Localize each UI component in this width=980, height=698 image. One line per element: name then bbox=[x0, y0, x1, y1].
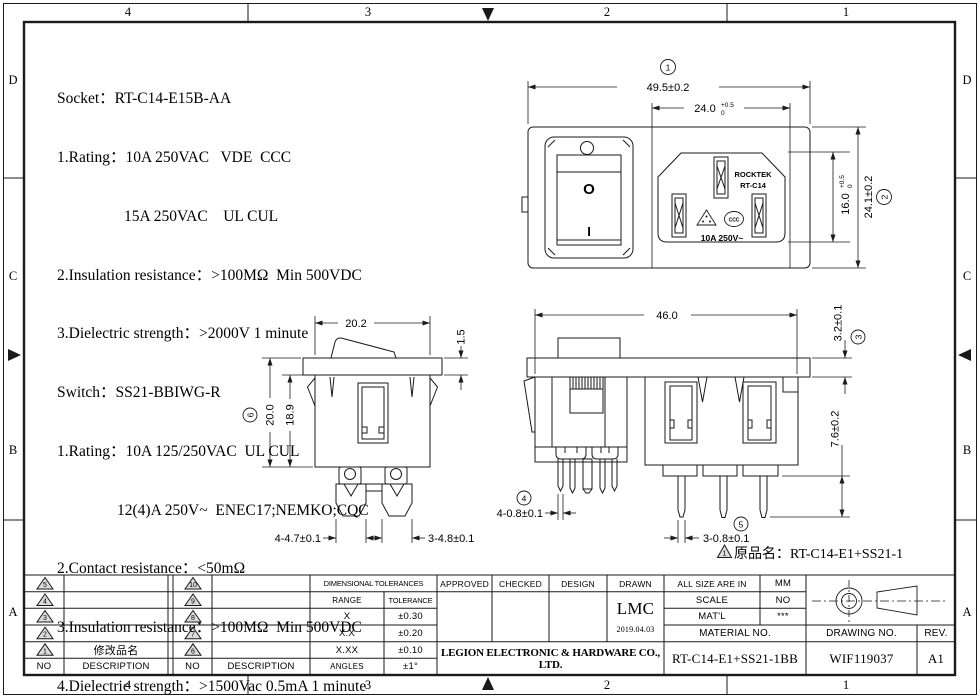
dim-opening-tol-dn: 0 bbox=[721, 110, 725, 117]
zone-col-2: 2 bbox=[596, 5, 618, 20]
approved-header: APPROVED bbox=[437, 575, 492, 592]
dim-overall-height: 24.1±0.2 bbox=[863, 176, 875, 219]
drawing-sheet: 5 4 3 2 1 10 9 8 7 6 O I bbox=[0, 0, 980, 698]
original-name-note: 原品名：RT-C14-E1+SS21-1 bbox=[734, 546, 903, 562]
design-header: DESIGN bbox=[549, 575, 607, 592]
tol-value-xx: ±0.20 bbox=[384, 625, 437, 642]
spec-line: Switch：SS21-BBIWG-R bbox=[57, 383, 369, 403]
tol-range-xx: X.X bbox=[310, 625, 384, 642]
drawn-header: DRAWN bbox=[607, 575, 664, 592]
center-mark-bottom-icon bbox=[482, 677, 494, 690]
ref-balloon-3: 3 bbox=[854, 334, 864, 339]
dim-terminal-b: 3-4.8±0.1 bbox=[428, 533, 474, 545]
rev-no: 2 bbox=[43, 632, 47, 639]
spec-line: 1.Rating：10A 250VAC VDE CCC bbox=[57, 148, 369, 168]
ccc-mark-icon: CCC bbox=[725, 212, 744, 227]
dim-pin-length: 7.6±0.2 bbox=[830, 411, 842, 448]
spec-line: 4.Dielectric strength：>1500Vac 0.5mA 1 m… bbox=[57, 677, 369, 697]
tol-value-angles: ±1° bbox=[384, 658, 437, 675]
scale-value: NO bbox=[760, 592, 806, 608]
checked-header: CHECKED bbox=[492, 575, 549, 592]
revision-1-description: 修改品名 bbox=[64, 642, 168, 658]
rev-desc-header-right: DESCRIPTION bbox=[212, 658, 310, 675]
zone-col-1b: 1 bbox=[835, 678, 857, 693]
dim-socket-pin-thickness: 3-0.8±0.1 bbox=[703, 533, 749, 545]
rev-no: 5 bbox=[43, 582, 47, 589]
front-view: O I ROCKTEK RT-C14 CCC 10A 250V~ bbox=[522, 60, 892, 269]
rev-no-header-left: NO bbox=[24, 658, 64, 675]
zone-col-3: 3 bbox=[357, 5, 379, 20]
zone-row-b2: B bbox=[956, 443, 978, 458]
rating-label: 10A 250V~ bbox=[701, 233, 743, 243]
unit-value: MM bbox=[760, 575, 806, 592]
spec-line: 12(4)A 250V~ ENEC17;NEMKO;CQC bbox=[117, 501, 369, 521]
dim-switch-pin-thickness: 4-0.8±0.1 bbox=[497, 508, 543, 520]
brand-label: ROCKTEK bbox=[734, 170, 772, 179]
third-angle-projection-icon bbox=[812, 580, 948, 622]
rev-no: 4 bbox=[43, 599, 47, 606]
zone-row-a2: A bbox=[956, 605, 978, 620]
dim-inlet-height: 16.0 bbox=[840, 193, 852, 214]
spec-line: Socket：RT-C14-E15B-AA bbox=[57, 89, 369, 109]
ref-balloon-1: 1 bbox=[666, 63, 671, 73]
rev-no-header-right: NO bbox=[173, 658, 212, 675]
dim-overall-width: 49.5±0.2 bbox=[647, 82, 690, 94]
dim-flange-thickness: 1.5 bbox=[456, 329, 468, 344]
tol-range-angles: ANGLES bbox=[310, 658, 384, 675]
tol-value-x: ±0.30 bbox=[384, 608, 437, 625]
switch-on-symbol: I bbox=[587, 224, 591, 239]
scale-label: SCALE bbox=[664, 592, 760, 608]
drawn-by: LMC bbox=[607, 596, 664, 622]
spec-line: 15A 250VAC UL CUL bbox=[124, 207, 369, 227]
rev-no: 3 bbox=[43, 615, 47, 622]
rev-label: REV. bbox=[917, 625, 955, 642]
tol-range-x: X bbox=[310, 608, 384, 625]
zone-col-4: 4 bbox=[117, 5, 139, 20]
range-header: RANGE bbox=[310, 592, 384, 608]
socket-pins bbox=[678, 476, 767, 518]
spec-line: 2.Insulation resistance：>100MΩ Min 500VD… bbox=[57, 266, 369, 286]
tol-value-xxx: ±0.10 bbox=[384, 642, 437, 658]
dim-inlet-tol-dn: 0 bbox=[847, 184, 854, 188]
switch-off-symbol: O bbox=[583, 181, 595, 198]
dim-opening-tol-up: +0.5 bbox=[721, 102, 734, 109]
zone-row-c: C bbox=[2, 269, 24, 284]
tolerance-title: DIMENSIONAL TOLERANCES bbox=[310, 575, 437, 592]
tol-range-xxx: X.XX bbox=[310, 642, 384, 658]
vde-triangle-icon bbox=[697, 210, 716, 225]
ref-balloon-5: 5 bbox=[739, 520, 744, 530]
zone-row-a: A bbox=[2, 605, 24, 620]
drawn-date: 2019.04.03 bbox=[607, 622, 664, 636]
rev-desc-header-left: DESCRIPTION bbox=[64, 658, 168, 675]
dim-assembly-flange: 3.2±0.1 bbox=[833, 305, 845, 342]
zone-row-d2: D bbox=[956, 73, 978, 88]
zone-col-1: 1 bbox=[835, 5, 857, 20]
center-mark-right-icon bbox=[958, 349, 971, 361]
company-name: LEGION ELECTRONIC & HARDWARE CO., LTD. bbox=[437, 642, 664, 675]
center-mark-top-icon bbox=[482, 8, 494, 21]
matl-label: MAT'L bbox=[664, 608, 760, 625]
inlet-prong bbox=[698, 377, 707, 402]
assembly-side-view: 46.0 3.2±0.1 3 7.6±0.2 4-0.8±0.1 4 3-0.8… bbox=[497, 305, 904, 562]
material-no-label: MATERIAL NO. bbox=[664, 625, 806, 642]
material-no-value: RT-C14-E1+SS21-1BB bbox=[664, 642, 806, 675]
switch-pins bbox=[558, 459, 617, 493]
drawing-no-value: WIF119037 bbox=[806, 642, 917, 675]
rev-value: A1 bbox=[917, 642, 955, 675]
spec-line: 3.Dielectric strength：>2000V 1 minute bbox=[57, 324, 369, 344]
zone-row-c2: C bbox=[956, 269, 978, 284]
drawing-no-label: DRAWING NO. bbox=[806, 625, 917, 642]
model-label: RT-C14 bbox=[740, 181, 767, 190]
spec-line: 1.Rating：10A 125/250VAC UL CUL bbox=[57, 442, 369, 462]
zone-col-2b: 2 bbox=[596, 678, 618, 693]
center-mark-left-icon bbox=[8, 349, 21, 361]
svg-text:CCC: CCC bbox=[729, 218, 740, 224]
dim-assembly-width: 46.0 bbox=[656, 310, 677, 322]
ref-balloon-2: 2 bbox=[880, 194, 890, 199]
dim-inlet-tol-up: +0.5 bbox=[839, 175, 846, 188]
zone-row-d: D bbox=[2, 73, 24, 88]
dim-opening-width: 24.0 bbox=[694, 103, 715, 115]
note-revision-no: 1 bbox=[723, 551, 727, 558]
tolerance-header: TOLERANCE bbox=[384, 592, 437, 608]
c14-pins bbox=[672, 157, 766, 237]
matl-value: *** bbox=[760, 608, 806, 625]
ref-balloon-4: 4 bbox=[522, 494, 527, 504]
rev-no: 1 bbox=[43, 648, 47, 655]
zone-row-b: B bbox=[2, 443, 24, 458]
all-size-label: ALL SIZE ARE IN bbox=[664, 575, 760, 592]
